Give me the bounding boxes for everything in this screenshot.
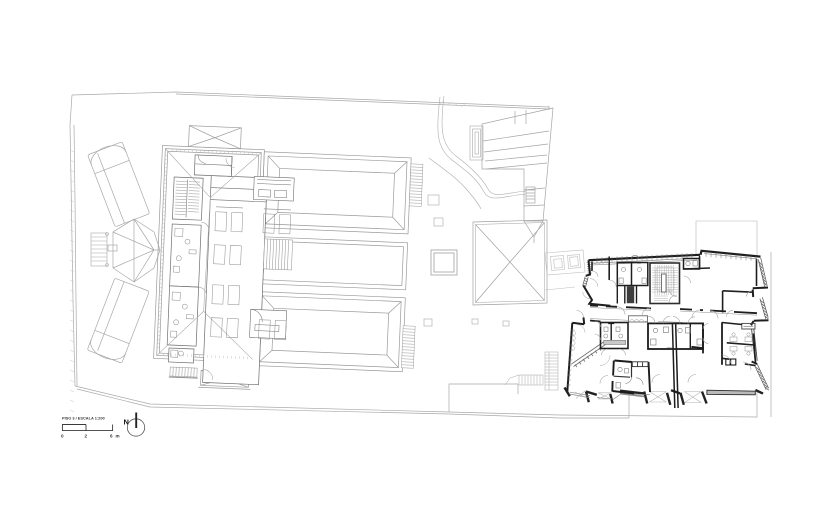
svg-text:N: N — [124, 418, 129, 427]
svg-text:m: m — [116, 434, 120, 439]
svg-text:2: 2 — [85, 434, 88, 439]
svg-text:PISO 3 / ESCALA 1:200: PISO 3 / ESCALA 1:200 — [62, 416, 105, 421]
svg-text:6: 6 — [110, 434, 113, 439]
svg-text:0: 0 — [61, 434, 64, 439]
